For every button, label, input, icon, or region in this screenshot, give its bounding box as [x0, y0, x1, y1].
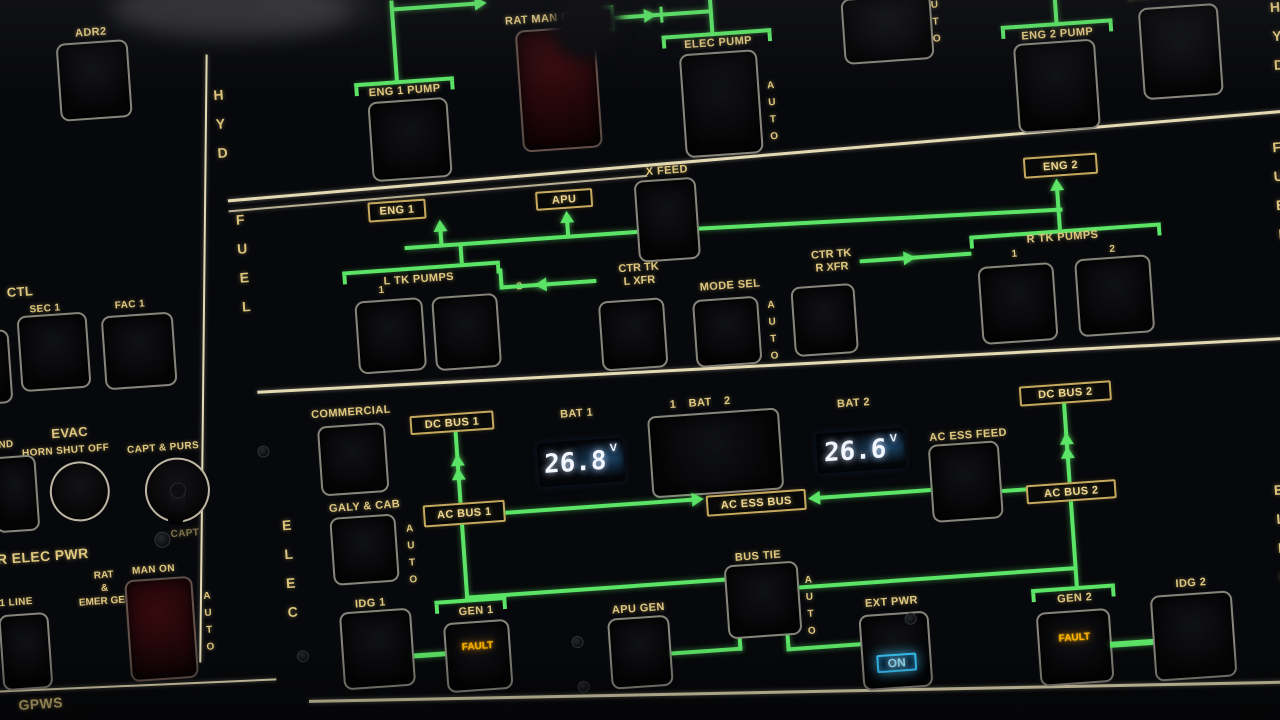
xfr-right-arrow — [903, 251, 916, 266]
strip-elec-right: ELEC — [1270, 481, 1280, 598]
ptu-button[interactable] — [840, 0, 934, 65]
rat-man-on-button[interactable] — [515, 25, 603, 152]
ac-bus-1-box: AC BUS 1 — [423, 500, 506, 528]
idg1-gen1-line — [414, 651, 445, 658]
acbus1-down-line — [460, 525, 469, 599]
strip-fuel-right: FUEL — [1268, 139, 1280, 256]
ext-pwr-on-light: ON — [876, 652, 917, 673]
dc1-arrow-1 — [450, 453, 465, 466]
bat-1-unit: V — [609, 442, 617, 454]
bat-2-label: BAT 2 — [837, 396, 871, 410]
screw — [257, 445, 270, 458]
fuel-apu-box: APU — [535, 188, 593, 211]
ltk-pumps-label: L TK PUMPS — [383, 271, 454, 288]
xfr-left-arrow — [534, 277, 547, 292]
eng1-pump-button[interactable] — [367, 97, 452, 182]
hyd-branch-arrow — [474, 0, 487, 11]
ext-pwr-label: EXT PWR — [865, 594, 919, 610]
idg1-label: IDG 1 — [355, 596, 386, 610]
dc2-arrow-2 — [1060, 446, 1075, 459]
mode-sel-auto-label: AUTO — [765, 299, 781, 368]
idg2-label: IDG 2 — [1175, 576, 1206, 590]
fuel-eng2-box: ENG 2 — [1023, 153, 1098, 179]
man-on-guarded-button[interactable] — [124, 576, 199, 682]
galy-cab-auto-label: AUTO — [404, 523, 420, 592]
sec1-button[interactable] — [16, 312, 91, 393]
strip-hyd-left: HYD — [210, 86, 232, 174]
x-feed-label: X FEED — [645, 163, 688, 178]
apu-gen-label: APU GEN — [612, 601, 666, 617]
panel: HYD FUEL ELEC HYD FUEL ELEC ADR2 CTL SEC… — [0, 0, 1280, 720]
capt-purs-label: CAPT & PURS — [127, 440, 200, 456]
x-feed-button[interactable] — [633, 177, 701, 263]
ltk-pump1-button[interactable] — [354, 297, 427, 375]
gen2-idg2-line — [1110, 639, 1154, 648]
galy-cab-label: GALY & CAB — [329, 498, 401, 515]
gen2-label: GEN 2 — [1057, 591, 1093, 605]
bat-1-voltage: 26.8 — [544, 446, 606, 480]
feed-ess-line — [820, 488, 931, 500]
ctr-tk-r-xfr-label: CTR TK R XFR — [811, 247, 853, 276]
ctr-tk-l-line2: L XFR — [619, 273, 660, 289]
strip-hyd-right: HYD — [1266, 0, 1280, 86]
bat-1-display: 26.8 V — [537, 437, 626, 487]
strip-elec-left: ELEC — [278, 517, 302, 634]
galy-cab-button[interactable] — [329, 513, 400, 585]
ltk-1-label: 1 — [378, 285, 385, 296]
fuel-trunk-right — [699, 208, 1063, 231]
gen-1-line-label: 1 LINE — [0, 596, 33, 609]
ext-pwr-line — [786, 642, 862, 651]
mode-sel-label: MODE SEL — [699, 277, 760, 293]
gen2-button[interactable]: FAULT — [1036, 608, 1115, 687]
rtk-pump2-button[interactable] — [1074, 254, 1155, 337]
bat-selector-label: 1 BAT 2 — [669, 395, 731, 411]
evac-title: EVAC — [51, 424, 89, 442]
hyd-branch-line — [392, 1, 478, 11]
ctr-tk-l-xfr-label: CTR TK L XFR — [618, 260, 660, 289]
ext-pwr-button[interactable]: ON — [858, 611, 933, 692]
divider-left-strip — [199, 55, 207, 663]
idg1-button[interactable] — [339, 608, 416, 691]
bus-tie-acbus2-line — [799, 566, 1076, 589]
gen2-fault-light: FAULT — [1058, 631, 1090, 644]
man-on-label: MAN ON — [132, 563, 176, 577]
screw — [154, 531, 171, 548]
bat-2-unit: V — [889, 432, 897, 444]
gen-1-line-button[interactable] — [0, 612, 53, 691]
mode-sel-button[interactable] — [692, 296, 763, 368]
elec-pump-yellow-button[interactable] — [1138, 3, 1224, 100]
elec-pump-yellow-label: ELEC PUMP — [1127, 0, 1195, 3]
rat-man-on-label: RAT MAN ON — [505, 10, 579, 27]
xfr-left-line — [500, 279, 596, 290]
strip-fuel-left: FUEL — [232, 211, 256, 328]
apu-gen-line — [671, 647, 742, 656]
bat-2-display: 26.6 V — [816, 428, 907, 474]
bat-1-label: BAT 1 — [560, 406, 594, 420]
overhead-panel-photo: HYD FUEL ELEC HYD FUEL ELEC ADR2 CTL SEC… — [0, 0, 1280, 720]
bus-tie-button[interactable] — [724, 561, 803, 640]
commercial-label: COMMERCIAL — [311, 404, 391, 422]
hyd-riser-eng1 — [389, 0, 399, 82]
gnd-button[interactable] — [0, 454, 40, 533]
check-valve-bar — [659, 7, 663, 23]
idg2-button[interactable] — [1150, 590, 1238, 682]
ctr-tk-r-line2: R XFR — [811, 260, 852, 276]
adr2-label: ADR2 — [75, 25, 107, 39]
elec-pump-button[interactable] — [679, 49, 764, 158]
gen1-label: GEN 1 — [458, 604, 494, 618]
ess-arrow-right — [691, 492, 704, 507]
ess-arrow-left — [808, 491, 821, 506]
acbus1-ess-line — [505, 498, 695, 515]
apu-gen-button[interactable] — [607, 615, 674, 690]
capt-position-label: CAPT — [170, 527, 200, 540]
check-valve-arrow — [644, 8, 657, 23]
ctl-label: CTL — [6, 283, 33, 300]
edge-partial-button[interactable] — [0, 329, 13, 408]
dc1-arrow-2 — [451, 467, 466, 480]
bat-2-voltage: 26.6 — [824, 434, 886, 468]
gen1-fault-light: FAULT — [462, 640, 494, 653]
ltk-riser — [459, 245, 464, 263]
gnd-partial-label: ND — [0, 439, 14, 451]
horn-shut-off-button[interactable] — [48, 459, 112, 523]
eng2-pump-button[interactable] — [1013, 38, 1101, 134]
dc2-arrow-1 — [1059, 432, 1074, 445]
gpws-title: GPWS — [18, 694, 63, 713]
screw — [577, 680, 590, 693]
ctr-tk-r-xfr-button[interactable] — [790, 283, 859, 357]
adr2-button[interactable] — [56, 39, 133, 122]
screw — [571, 636, 584, 649]
elec-pump-riser — [708, 0, 715, 34]
rtk-2-label: 2 — [1109, 244, 1116, 255]
commercial-button[interactable] — [317, 422, 390, 497]
ac-ess-feed-button[interactable] — [928, 440, 1004, 523]
screw — [296, 650, 309, 663]
rtk-1-label: 1 — [1011, 248, 1018, 259]
fac1-button[interactable] — [101, 311, 178, 390]
gen1-button[interactable]: FAULT — [443, 619, 514, 693]
fuel-eng1-box: ENG 1 — [367, 199, 426, 223]
ctr-tk-l-xfr-button[interactable] — [598, 297, 669, 371]
rtk-pump1-button[interactable] — [977, 262, 1058, 345]
fac1-label: FAC 1 — [114, 298, 145, 311]
elec-pump-auto-label: AUTO — [765, 80, 781, 149]
emer-elec-pwr-title: EMER ELEC PWR — [0, 545, 89, 570]
bat-selector-button[interactable] — [647, 407, 784, 498]
acbus2-feed-line — [1002, 487, 1028, 493]
acbus2-down-line — [1069, 501, 1079, 586]
man-on-auto-label: AUTO — [201, 590, 217, 659]
dc-bus-1-box: DC BUS 1 — [409, 410, 494, 435]
ltk-pump2-button[interactable] — [431, 293, 502, 371]
horn-shut-off-label: HORN SHUT OFF — [22, 442, 110, 459]
